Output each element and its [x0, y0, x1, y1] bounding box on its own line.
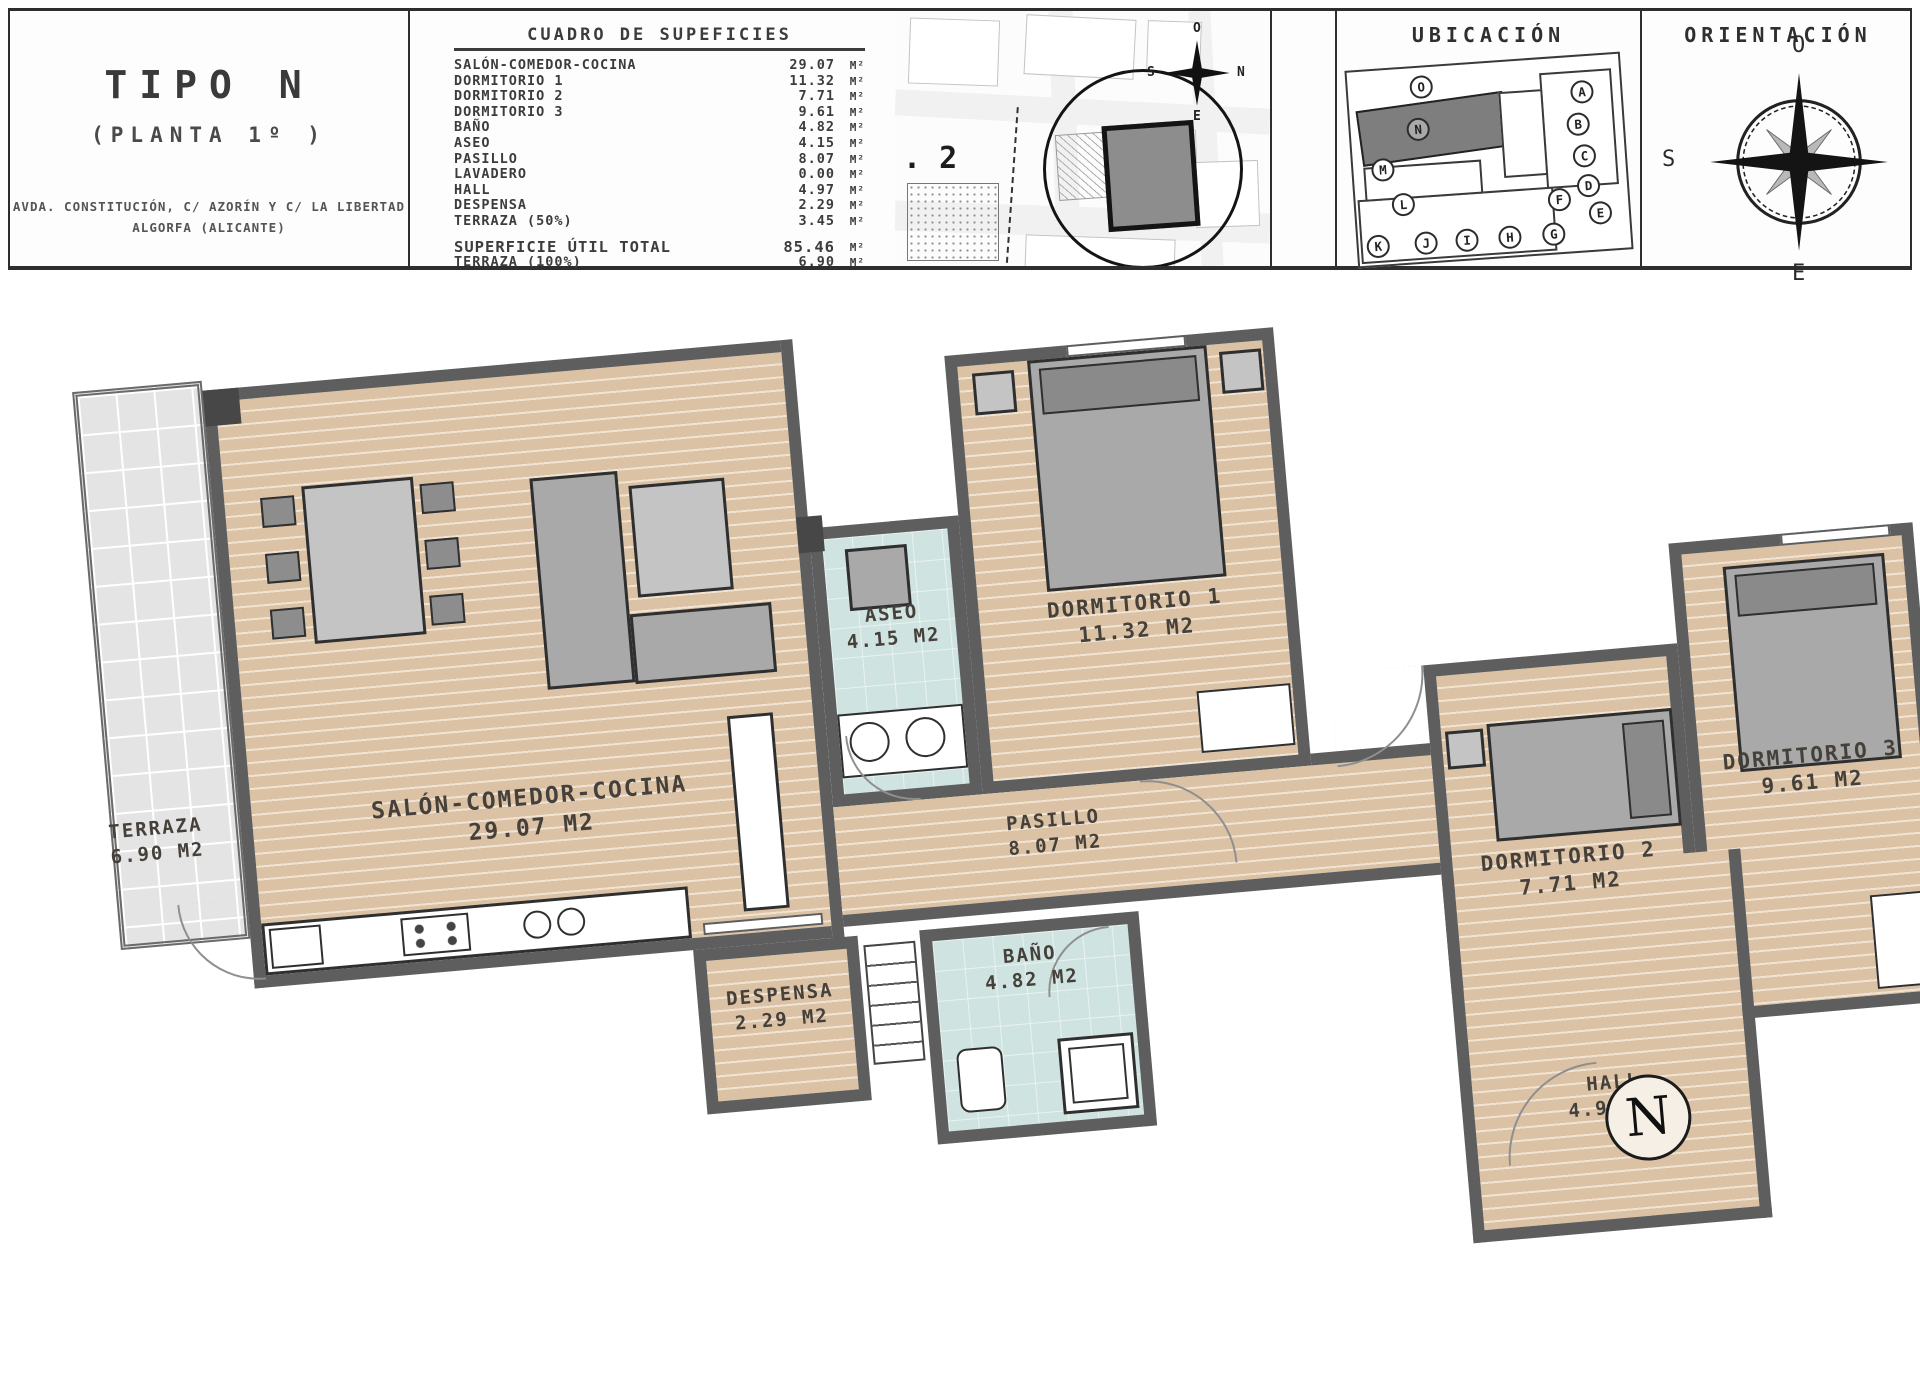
unit-block [1498, 89, 1548, 178]
address-line-2: ALGORFA (ALICANTE) [10, 217, 408, 238]
chair [419, 481, 455, 514]
building-outline [1024, 14, 1137, 80]
table-row: DORMITORIO 39.61M² [454, 105, 865, 121]
table-row: DORMITORIO 27.71M² [454, 89, 865, 105]
kitchen-sink [522, 909, 552, 939]
kitchen-island [727, 712, 790, 911]
coffee-table [628, 478, 733, 598]
nightstand [1445, 728, 1486, 769]
room-dorm1 [944, 327, 1311, 794]
room-salon [202, 340, 832, 988]
unit-marker: D [1576, 173, 1601, 198]
toilet [956, 1046, 1007, 1114]
highlighted-unit-block [1356, 91, 1510, 167]
chair [424, 537, 460, 570]
address-line-1: AVDA. CONSTITUCIÓN, C/ AZORÍN Y C/ LA LI… [10, 196, 408, 217]
boundary-dashed-line [1005, 107, 1019, 266]
compass-point-label: S [1147, 65, 1155, 80]
table-total-row: SUPERFICIE ÚTIL TOTAL85.46M² [454, 240, 865, 256]
unit-marker: F [1547, 187, 1572, 212]
table-row: ASEO4.15M² [454, 136, 865, 152]
cooktop [400, 913, 471, 957]
chair [260, 495, 296, 528]
compass-point-label: S [1662, 147, 1675, 172]
nightstand [1219, 348, 1265, 394]
chair [429, 593, 465, 626]
fridge [269, 925, 324, 969]
table-row: SALÓN-COMEDOR-COCINA29.07M² [454, 58, 865, 74]
nightstand [972, 370, 1018, 416]
unit-marker: O [1409, 75, 1434, 100]
window [703, 913, 824, 935]
panel-site-plan: . 2 O S N E [895, 11, 1270, 266]
wardrobe [1870, 890, 1920, 989]
kitchen-sink [556, 906, 586, 936]
window [1780, 524, 1891, 546]
dining-table [301, 477, 426, 644]
kitchen-counter [261, 886, 692, 975]
floor-plan: TERRAZA 6.90 M2 SALÓN-COMEDOR-COCINA 29.… [39, 202, 1882, 1381]
wardrobe [1196, 683, 1295, 753]
pillow [1622, 720, 1672, 819]
compass-point-label: E [1193, 109, 1201, 124]
table-row: BAÑO4.82M² [454, 120, 865, 136]
table-row: DORMITORIO 111.32M² [454, 74, 865, 90]
sofa [529, 471, 635, 690]
room-hall: N [1441, 848, 1772, 1243]
compass-point-label: N [1237, 65, 1245, 80]
compass-point-label: O [1193, 21, 1201, 36]
compass-point-label: O [1792, 33, 1805, 58]
table-row: PASILLO8.07M² [454, 152, 865, 168]
areas-table-title: CUADRO DE SUPEFICIES [454, 25, 865, 51]
shower [1057, 1032, 1139, 1114]
sofa-chaise [630, 602, 778, 684]
ubicacion-title: UBICACIÓN [1337, 23, 1640, 47]
plan-floor-subtitle: (PLANTA 1º ) [10, 123, 408, 147]
door-arc [177, 898, 266, 987]
bed [1027, 345, 1227, 592]
divider [1270, 11, 1272, 266]
plan-type-title: TIPO N [10, 63, 408, 107]
stippled-area [907, 183, 999, 261]
pillow [1734, 563, 1877, 617]
laundry-shelves [863, 941, 925, 1065]
panel-areas-table: CUADRO DE SUPEFICIES SALÓN-COMEDOR-COCIN… [410, 11, 895, 266]
bed [1486, 708, 1682, 842]
wall-pillar [796, 515, 825, 553]
orientacion-title: ORIENTACIÓN [1642, 23, 1914, 47]
building-outline [908, 17, 1000, 86]
pillow [1039, 355, 1200, 415]
panel-tipo: TIPO N (PLANTA 1º ) AVDA. CONSTITUCIÓN, … [10, 11, 408, 266]
chair [265, 551, 301, 584]
table-row: HALL4.97M² [454, 183, 865, 199]
table-row: LAVADERO0.00M² [454, 167, 865, 183]
plot-number-label: . 2 [903, 141, 957, 176]
table-row: DESPENSA2.29M² [454, 198, 865, 214]
chair [270, 607, 306, 640]
table-total-row: TERRAZA (100%)6.90M² [454, 255, 865, 271]
wall-pillar [202, 388, 241, 427]
table-row: TERRAZA (50%)3.45M² [454, 214, 865, 230]
project-address: AVDA. CONSTITUCIÓN, C/ AZORÍN Y C/ LA LI… [10, 196, 408, 239]
compass-rose-icon: O S N E [1149, 25, 1245, 121]
